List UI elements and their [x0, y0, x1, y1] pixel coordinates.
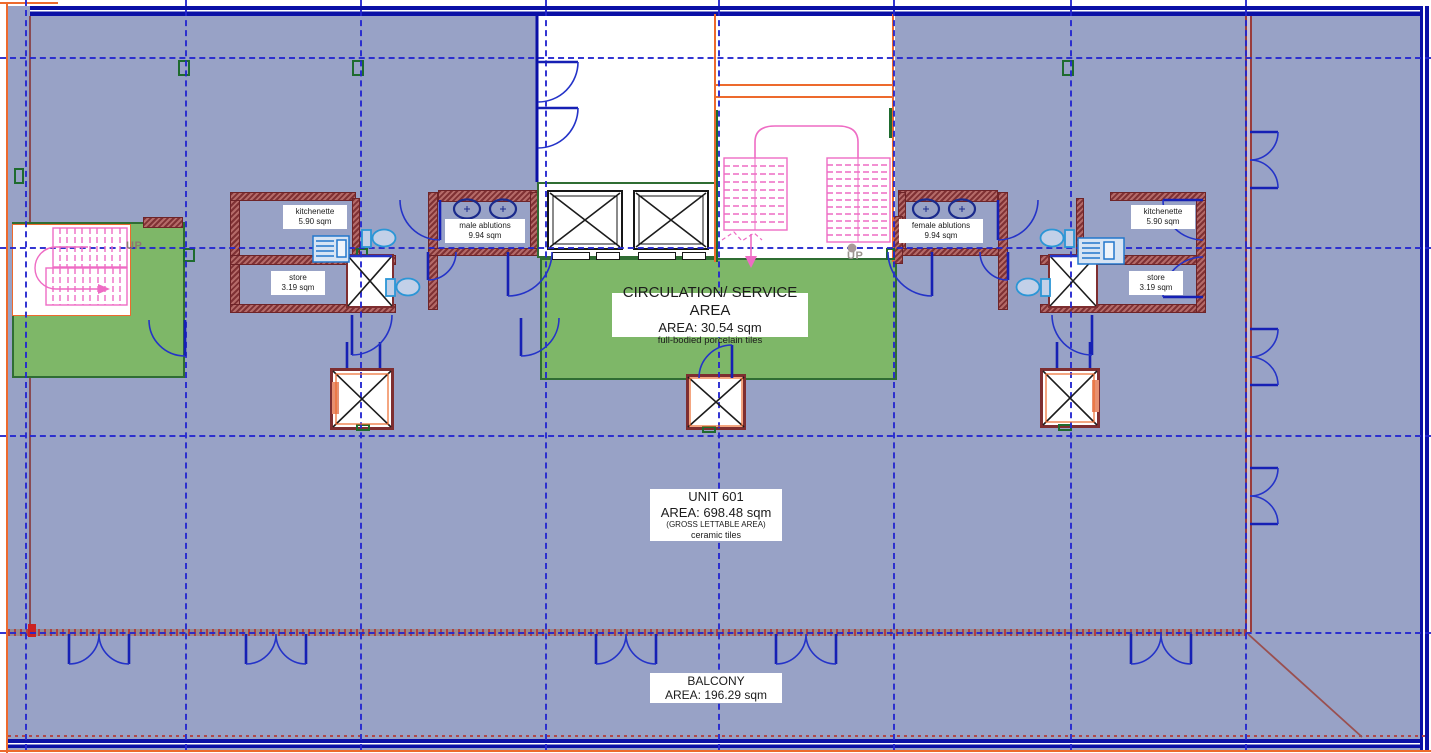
room-area: 3.19 sqm: [1129, 283, 1183, 293]
room-name: BALCONY: [650, 674, 782, 688]
room-name: store: [1129, 273, 1183, 283]
female-ablutions-label: female ablutions 9.94 sqm: [899, 219, 983, 243]
room-name: CIRCULATION/ SERVICE AREA: [612, 284, 808, 320]
kitchenette-right-label: kitchenette 5.90 sqm: [1131, 205, 1195, 229]
stair-up-center-annotation: UP: [847, 250, 863, 262]
male-ablutions-label: male ablutions 9.94 sqm: [445, 219, 525, 243]
room-name: UNIT 601: [650, 489, 782, 505]
circulation-area-label: CIRCULATION/ SERVICE AREA AREA: 30.54 sq…: [612, 293, 808, 337]
room-area: 9.94 sqm: [445, 231, 525, 241]
basin-fixtures: [454, 200, 975, 219]
room-finish: full-bodied porcelain tiles: [612, 335, 808, 346]
kitchenette-left-label: kitchenette 5.90 sqm: [283, 205, 347, 229]
room-area: AREA: 196.29 sqm: [650, 688, 782, 702]
balcony-label: BALCONY AREA: 196.29 sqm: [650, 673, 782, 703]
door-leaves: [69, 62, 1278, 664]
room-name: female ablutions: [899, 221, 983, 231]
unit-label: UNIT 601 AREA: 698.48 sqm (GROSS LETTABL…: [650, 489, 782, 541]
room-area: 5.90 sqm: [1131, 217, 1195, 227]
room-note: (GROSS LETTABLE AREA): [650, 520, 782, 530]
room-name: kitchenette: [283, 207, 347, 217]
door-swing-arcs: [69, 62, 1278, 664]
room-area: AREA: 30.54 sqm: [612, 320, 808, 336]
plan-linework: [0, 0, 1431, 753]
left-stair: [35, 228, 127, 305]
stair-up-left-annotation: UP: [126, 240, 142, 252]
floor-plan-canvas: CIRCULATION/ SERVICE AREA AREA: 30.54 sq…: [0, 0, 1431, 753]
room-area: 9.94 sqm: [899, 231, 983, 241]
lift-car-inner-frames: [553, 196, 703, 244]
room-name: store: [271, 273, 325, 283]
shaft-inner-frames: [336, 374, 1094, 426]
central-stair: [722, 126, 890, 268]
room-area: 5.90 sqm: [283, 217, 347, 227]
store-right-label: store 3.19 sqm: [1129, 271, 1183, 295]
room-area: AREA: 698.48 sqm: [650, 505, 782, 521]
room-name: male ablutions: [445, 221, 525, 231]
room-area: 3.19 sqm: [271, 283, 325, 293]
room-finish: ceramic tiles: [650, 530, 782, 541]
balcony-diagonal: [1248, 634, 1362, 737]
store-left-label: store 3.19 sqm: [271, 271, 325, 295]
room-name: kitchenette: [1131, 207, 1195, 217]
